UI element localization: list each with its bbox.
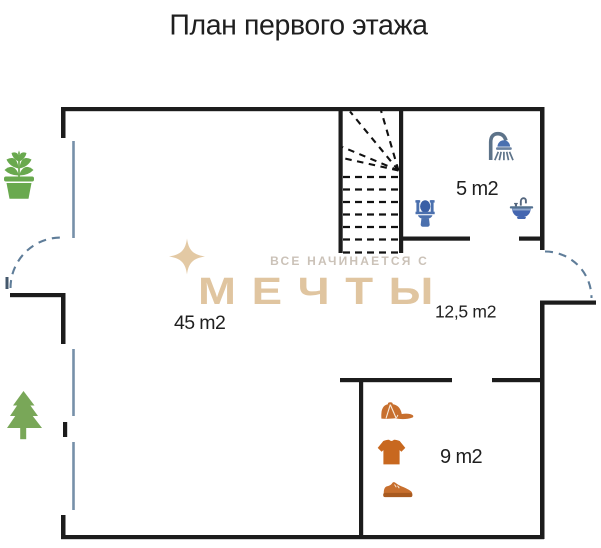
svg-text:12,5 m2: 12,5 m2 [435, 302, 496, 322]
svg-text:МЕЧТЫ: МЕЧТЫ [198, 270, 449, 313]
svg-text:ВСЕ НАЧИНАЕТСЯ С: ВСЕ НАЧИНАЕТСЯ С [270, 254, 429, 268]
svg-text:45 m2: 45 m2 [174, 312, 225, 334]
svg-text:План первого этажа: План первого этажа [169, 10, 428, 42]
svg-text:9 m2: 9 m2 [440, 446, 483, 468]
svg-text:5 m2: 5 m2 [456, 178, 499, 200]
